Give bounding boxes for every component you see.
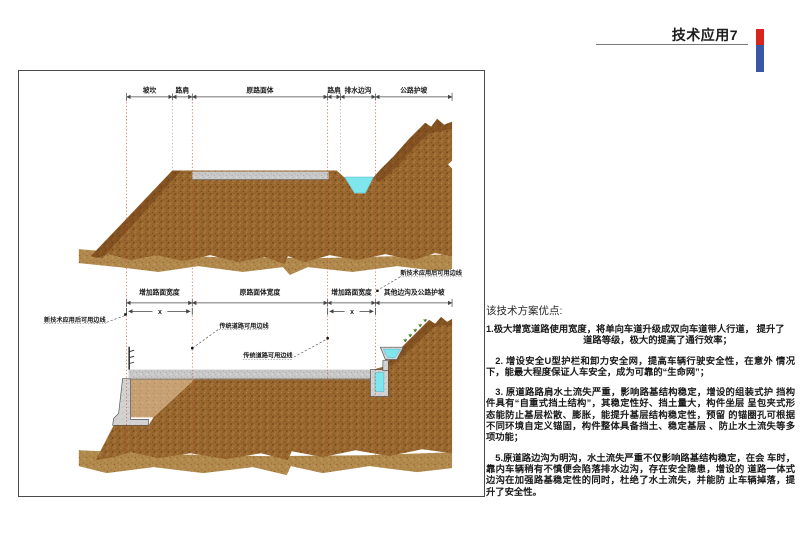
dim-label-original-roadbody: 原路面体 (246, 85, 273, 94)
dim-label-shoulder-right: 路肩 (327, 85, 341, 94)
callout-dot-trad-lower (326, 337, 328, 339)
note-paragraph-4: 5.原道路边沟为明沟，水土流失严重不仅影响路基结构稳定，在会 车时，靠内车辆稍有… (486, 453, 795, 498)
dim-label-highway-slope: 公路护坡 (400, 85, 427, 94)
top-cross-section (79, 119, 452, 275)
callout-new-edge-left: 新技术应用后可用边线 (44, 316, 106, 324)
top-soil-mass (91, 119, 452, 264)
dim-label-original-width: 原路面体宽度 (240, 287, 281, 296)
note-paragraph-2: 2. 增设安全U型护栏和卸力安全网，提高车辆行驶安全性，在意外 情况下，能最大程… (486, 356, 795, 379)
integrated-ditch-water (375, 373, 384, 392)
note-paragraph-1-line1: 1.极大增宽道路使用宽度，将单向车道升级成双向车道带人行道， 提升了 (486, 324, 785, 334)
callout-dot-new-edge-right (376, 290, 378, 292)
top-road-surface (192, 172, 328, 179)
note-paragraph-1: 1.极大增宽道路使用宽度，将单向车道升级成双向车道带人行道， 提升了道路等级，极… (486, 324, 795, 347)
callout-new-edge-right: 新技术应用后可用边线 (400, 269, 462, 277)
dim-label-added-width-left: 增加路面宽度 (139, 287, 180, 296)
page-title: 技术应用7 (672, 25, 738, 45)
callout-trad-edge-upper: 传统道路可用边线 (218, 322, 269, 330)
notes-panel: 该技术方案优点: 1.极大增宽道路使用宽度，将单向车道升级成双向车道带人行道， … (486, 303, 795, 507)
lower-road-surface (129, 370, 372, 379)
integrated-ditch (370, 361, 388, 397)
figure-frame: 坡坎 路肩 原路面体 路肩 排水边沟 公路护坡 增加路面宽度 原路面体宽度 增加… (18, 70, 485, 497)
note-paragraph-1-line2: 道路等级，极大的提高了通行效率； (486, 335, 795, 346)
lower-cross-section (79, 317, 452, 475)
accent-bar-red (756, 29, 764, 45)
x-label-left: x (158, 309, 162, 316)
lower-dimension-row (127, 299, 452, 307)
accent-bar-blue (756, 45, 764, 72)
notes-heading: 该技术方案优点: (486, 303, 795, 318)
dim-label-shoulder-left: 路肩 (176, 85, 190, 94)
page: { "header": { "title": "技术应用7", "accent"… (0, 0, 800, 555)
guardrail (129, 347, 134, 370)
cross-section-diagram: 坡坎 路肩 原路面体 路肩 排水边沟 公路护坡 增加路面宽度 原路面体宽度 增加… (19, 71, 484, 496)
header-divider (596, 44, 748, 45)
dim-label-ditch-slope-zone: 其他边沟及公路护坡 (384, 287, 445, 296)
callout-trad-edge-lower: 传统道路可用边线 (242, 352, 293, 360)
x-label-right: x (350, 309, 354, 316)
note-paragraph-3: 3. 原道路路肩水土流失严重，影响路基结构稳定，增设的组装式护 挡构件具有“自重… (486, 387, 795, 443)
callout-dot-trad-upper (191, 347, 193, 349)
gray-guide-lines (172, 99, 340, 174)
callouts: 新技术应用后可用边线 新技术应用后可用边线 传统道路可用边线 传统道路可用边线 (43, 269, 462, 360)
dim-label-slope-toe: 坡坎 (143, 85, 157, 94)
lower-dimension-labels: 增加路面宽度 原路面体宽度 增加路面宽度 其他边沟及公路护坡 (139, 287, 445, 296)
dim-label-added-width-right: 增加路面宽度 (331, 287, 372, 296)
top-dimension-labels: 坡坎 路肩 原路面体 路肩 排水边沟 公路护坡 (143, 85, 428, 94)
x-dimension-marks (127, 308, 376, 315)
callout-dot-new-edge-left (124, 313, 126, 315)
dim-label-drainage-ditch: 排水边沟 (344, 85, 371, 94)
accent-bar (756, 29, 764, 72)
